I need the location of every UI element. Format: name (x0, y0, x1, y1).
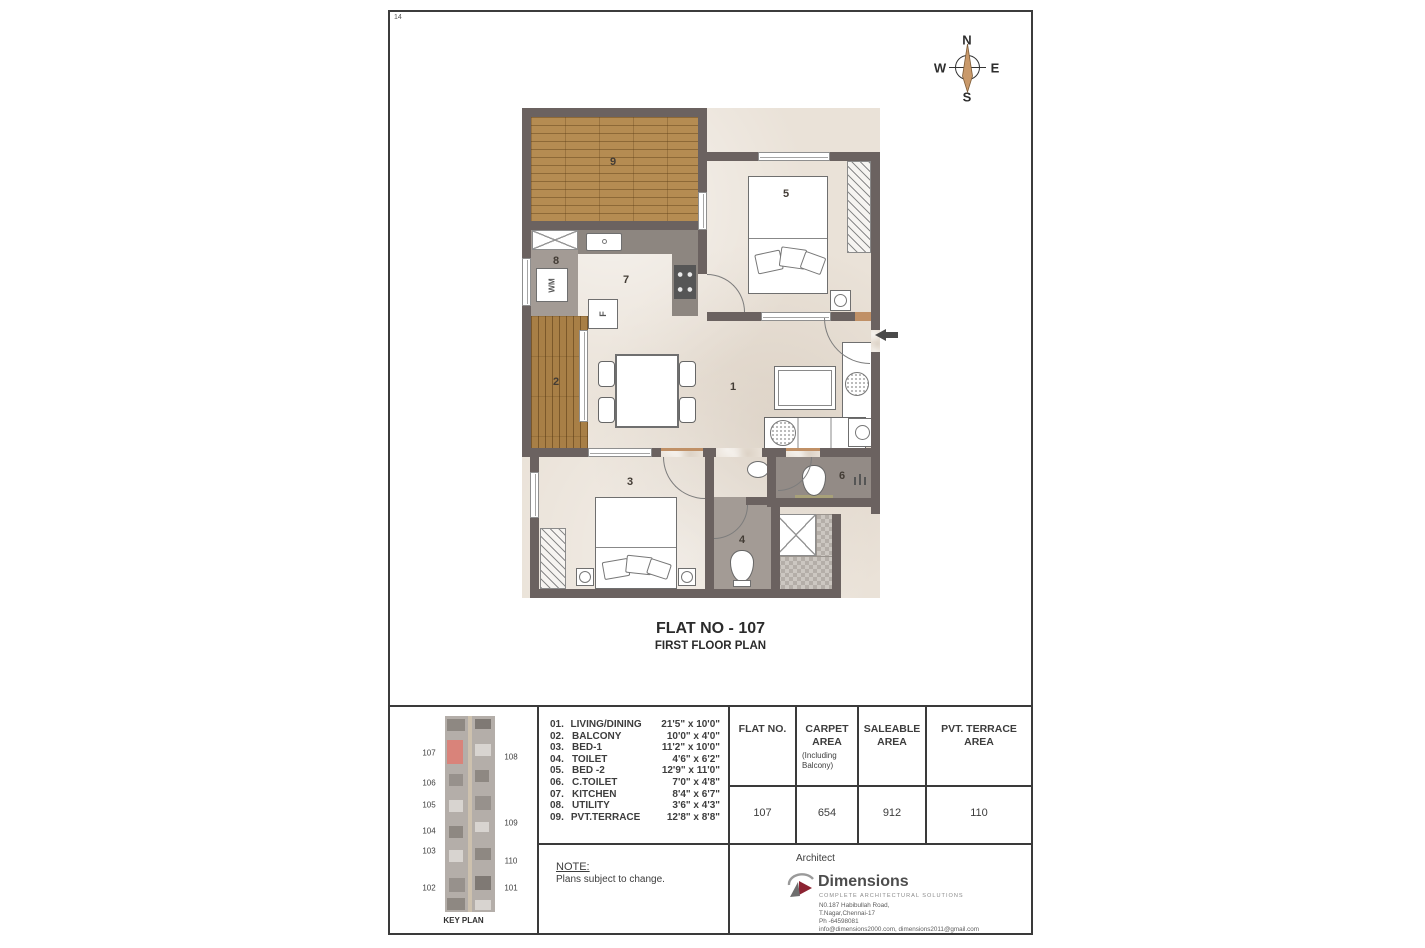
compass-west-label: W (934, 61, 946, 76)
bed-blanket-line (596, 547, 676, 548)
entry-arrow-icon (875, 329, 886, 341)
key-plan-unit (475, 900, 491, 910)
flat-no-title: FLAT NO - 107 (388, 620, 1033, 638)
room-label-bed2: 5 (783, 188, 789, 200)
wall (871, 152, 880, 330)
legend-dim: 12'8" x 8'8" (640, 812, 720, 824)
legend-dim: 12'9" x 11'0" (636, 765, 720, 777)
legend-no: 03. (550, 742, 572, 754)
legend-name: LIVING/DINING (571, 719, 642, 731)
shaft-box (776, 514, 816, 556)
architect-address2: T.Nagar,Chennai-17 (819, 910, 875, 917)
wardrobe (847, 161, 871, 253)
area-table-header-flatno: FLAT NO. (730, 723, 795, 736)
legend-row: 07.KITCHEN8'4" x 6'7" (550, 789, 720, 801)
door-lintel (786, 448, 820, 451)
key-plan-flat-number: 109 (504, 819, 517, 828)
architect-phone: Ph -64598081 (819, 918, 859, 925)
architect-email: info@dimensions2000.com, dimensions2011@… (819, 926, 979, 933)
key-plan-unit (475, 796, 491, 810)
legend-name: KITCHEN (572, 789, 636, 801)
key-plan-flat-number: 107 (422, 749, 435, 758)
plan-title: FLAT NO - 107 FIRST FLOOR PLAN (388, 620, 1033, 652)
key-plan-unit (475, 744, 491, 756)
door-opening (716, 448, 762, 457)
floor-plan: F WM (518, 100, 903, 620)
wall (522, 108, 707, 117)
key-plan-label: KEY PLAN (390, 916, 537, 925)
floor-plan-title: FIRST FLOOR PLAN (388, 640, 1033, 652)
toilet-wc-tank (733, 580, 751, 587)
key-plan-unit (449, 878, 465, 892)
sink-drain-icon (602, 239, 607, 244)
key-plan-flat-number: 110 (505, 857, 518, 866)
wall (767, 498, 880, 507)
wall (705, 457, 714, 589)
architect-address1: N0.187 Habibullah Road, (819, 902, 889, 909)
note-heading: NOTE: (556, 861, 728, 873)
room-label-ctoilet: 6 (839, 470, 845, 482)
window (588, 448, 652, 457)
side-table-lamp-icon (855, 425, 870, 440)
bed-blanket-line (749, 238, 827, 239)
key-plan-flat-number: 105 (422, 801, 435, 810)
key-plan-unit (447, 719, 465, 731)
legend-row: 06.C.TOILET7'0" x 4'8" (550, 777, 720, 789)
architect-firm: Dimensions (818, 873, 909, 891)
area-table-header-carpet: CARPET AREA (797, 723, 857, 749)
key-plan-unit (449, 850, 463, 862)
area-table-value-carpet: 654 (797, 807, 857, 819)
shaft-box (532, 230, 578, 250)
side-table-lamp-icon (579, 571, 591, 583)
legend-dim: 3'6" x 4'3" (636, 800, 720, 812)
cushion (770, 420, 796, 446)
room-legend: 01.LIVING/DINING21'5" x 10'0" 02.BALCONY… (539, 707, 728, 843)
legend-name: TOILET (572, 754, 636, 766)
window (530, 472, 539, 518)
room-label-terrace: 9 (610, 156, 616, 168)
legend-row: 02.BALCONY10'0" x 4'0" (550, 731, 720, 743)
architect-box: Architect Dimensions COMPLETE ARCHITECTU… (730, 845, 1031, 933)
legend-no: 07. (550, 789, 572, 801)
legend-row: 04.TOILET4'6" x 6'2" (550, 754, 720, 766)
key-plan-unit (475, 848, 491, 860)
cushion (845, 372, 869, 396)
note-box: NOTE: Plans subject to change. (539, 845, 728, 933)
compass: N W E S (928, 26, 1008, 110)
legend-name: BALCONY (572, 731, 636, 743)
key-plan-unit-highlight (447, 740, 463, 764)
key-plan-flat-number: 104 (422, 827, 435, 836)
wall (698, 108, 707, 274)
legend-no: 02. (550, 731, 572, 743)
washing-machine-icon: WM (536, 268, 568, 302)
architect-tagline: COMPLETE ARCHITECTURAL SOLUTIONS (819, 893, 964, 899)
balcony-slider (579, 330, 588, 422)
shower-tap-icon (864, 477, 866, 485)
key-plan-flat-number: 108 (504, 753, 517, 762)
legend-dim: 8'4" x 6'7" (636, 789, 720, 801)
side-table-lamp-icon (681, 571, 693, 583)
key-plan-unit (449, 774, 463, 786)
key-plan-unit (475, 876, 491, 890)
key-plan: 107 106 105 104 103 102 108 109 110 101 … (390, 707, 537, 933)
key-plan-building (445, 716, 495, 912)
room-label-balcony: 2 (553, 376, 559, 388)
window (761, 312, 831, 321)
chair (598, 361, 615, 387)
legend-name: BED -2 (572, 765, 636, 777)
terrace-door (698, 192, 707, 230)
area-table-value-flatno: 107 (730, 807, 795, 819)
room-label-living: 1 (730, 381, 736, 393)
window (758, 152, 830, 161)
side-table-lamp-icon (834, 294, 847, 307)
legend-no: 04. (550, 754, 572, 766)
legend-name: PVT.TERRACE (571, 812, 640, 824)
window (522, 258, 531, 306)
key-plan-flat-number: 102 (422, 884, 435, 893)
page-number: 14 (394, 14, 402, 21)
key-plan-unit (475, 822, 489, 832)
legend-row: 05.BED -212'9" x 11'0" (550, 765, 720, 777)
room-label-toilet: 4 (739, 534, 745, 546)
washbasin-icon (747, 461, 769, 478)
legend-dim: 11'2" x 10'0" (636, 742, 720, 754)
center-table (774, 366, 836, 410)
area-table-header-carpet-note: (Including Balcony) (802, 751, 856, 770)
legend-no: 05. (550, 765, 572, 777)
legend-name: BED-1 (572, 742, 636, 754)
key-plan-flat-number: 103 (422, 847, 435, 856)
fridge-icon: F (588, 299, 618, 329)
key-plan-flat-number: 106 (422, 779, 435, 788)
shower-tap-icon (859, 474, 861, 485)
chair (598, 397, 615, 423)
divider (730, 785, 1031, 787)
legend-row: 03.BED-111'2" x 10'0" (550, 742, 720, 754)
legend-dim: 4'6" x 6'2" (636, 754, 720, 766)
wall (832, 514, 841, 598)
note-text: Plans subject to change. (556, 874, 728, 885)
door-opening (714, 497, 746, 505)
wall (522, 108, 531, 230)
door-lintel (661, 448, 703, 451)
legend-no: 01. (550, 719, 571, 731)
chair (679, 361, 696, 387)
room-label-utility: 8 (553, 255, 559, 267)
legend-dim: 7'0" x 4'8" (636, 777, 720, 789)
shower-tap-icon (854, 477, 856, 485)
title-block: 107 106 105 104 103 102 108 109 110 101 … (388, 705, 1033, 935)
legend-dim: 10'0" x 4'0" (636, 731, 720, 743)
wall (771, 505, 780, 598)
legend-row: 08.UTILITY3'6" x 4'3" (550, 800, 720, 812)
legend-dim: 21'5" x 10'0" (642, 719, 720, 731)
area-table-value-terrace: 110 (927, 807, 1031, 819)
key-plan-unit (449, 826, 463, 838)
legend-no: 06. (550, 777, 572, 789)
key-plan-unit (447, 898, 465, 910)
entry-arrow-icon (886, 332, 898, 338)
architect-label: Architect (796, 853, 835, 864)
area-table-header-terrace: PVT. TERRACE AREA (927, 723, 1031, 749)
key-plan-unit (475, 719, 491, 729)
legend-no: 09. (550, 812, 571, 824)
compass-east-label: E (991, 61, 1000, 76)
terrace-floor (531, 117, 698, 221)
legend-row: 01.LIVING/DINING21'5" x 10'0" (550, 719, 720, 731)
wardrobe (540, 528, 566, 589)
legend-name: C.TOILET (572, 777, 636, 789)
dimensions-logo-icon (786, 871, 816, 899)
compass-needle-icon (958, 42, 977, 94)
key-plan-unit (475, 770, 489, 782)
dining-table (615, 354, 679, 428)
wall (530, 589, 840, 598)
wall (522, 221, 707, 230)
stove-icon (674, 265, 696, 299)
legend-row: 09.PVT.TERRACE12'8" x 8'8" (550, 812, 720, 824)
area-table-header-saleable: SALEABLE AREA (859, 723, 925, 749)
wall (871, 352, 880, 514)
key-plan-corridor (468, 716, 472, 912)
room-label-bed1: 3 (627, 476, 633, 488)
key-plan-unit (449, 800, 463, 812)
key-plan-flat-number: 101 (504, 884, 517, 893)
legend-name: UTILITY (572, 800, 636, 812)
fridge-label: F (598, 311, 608, 317)
legend-no: 08. (550, 800, 572, 812)
chair (679, 397, 696, 423)
area-table-value-saleable: 912 (859, 807, 925, 819)
room-label-kitchen: 7 (623, 274, 629, 286)
washing-machine-label: WM (548, 278, 557, 292)
